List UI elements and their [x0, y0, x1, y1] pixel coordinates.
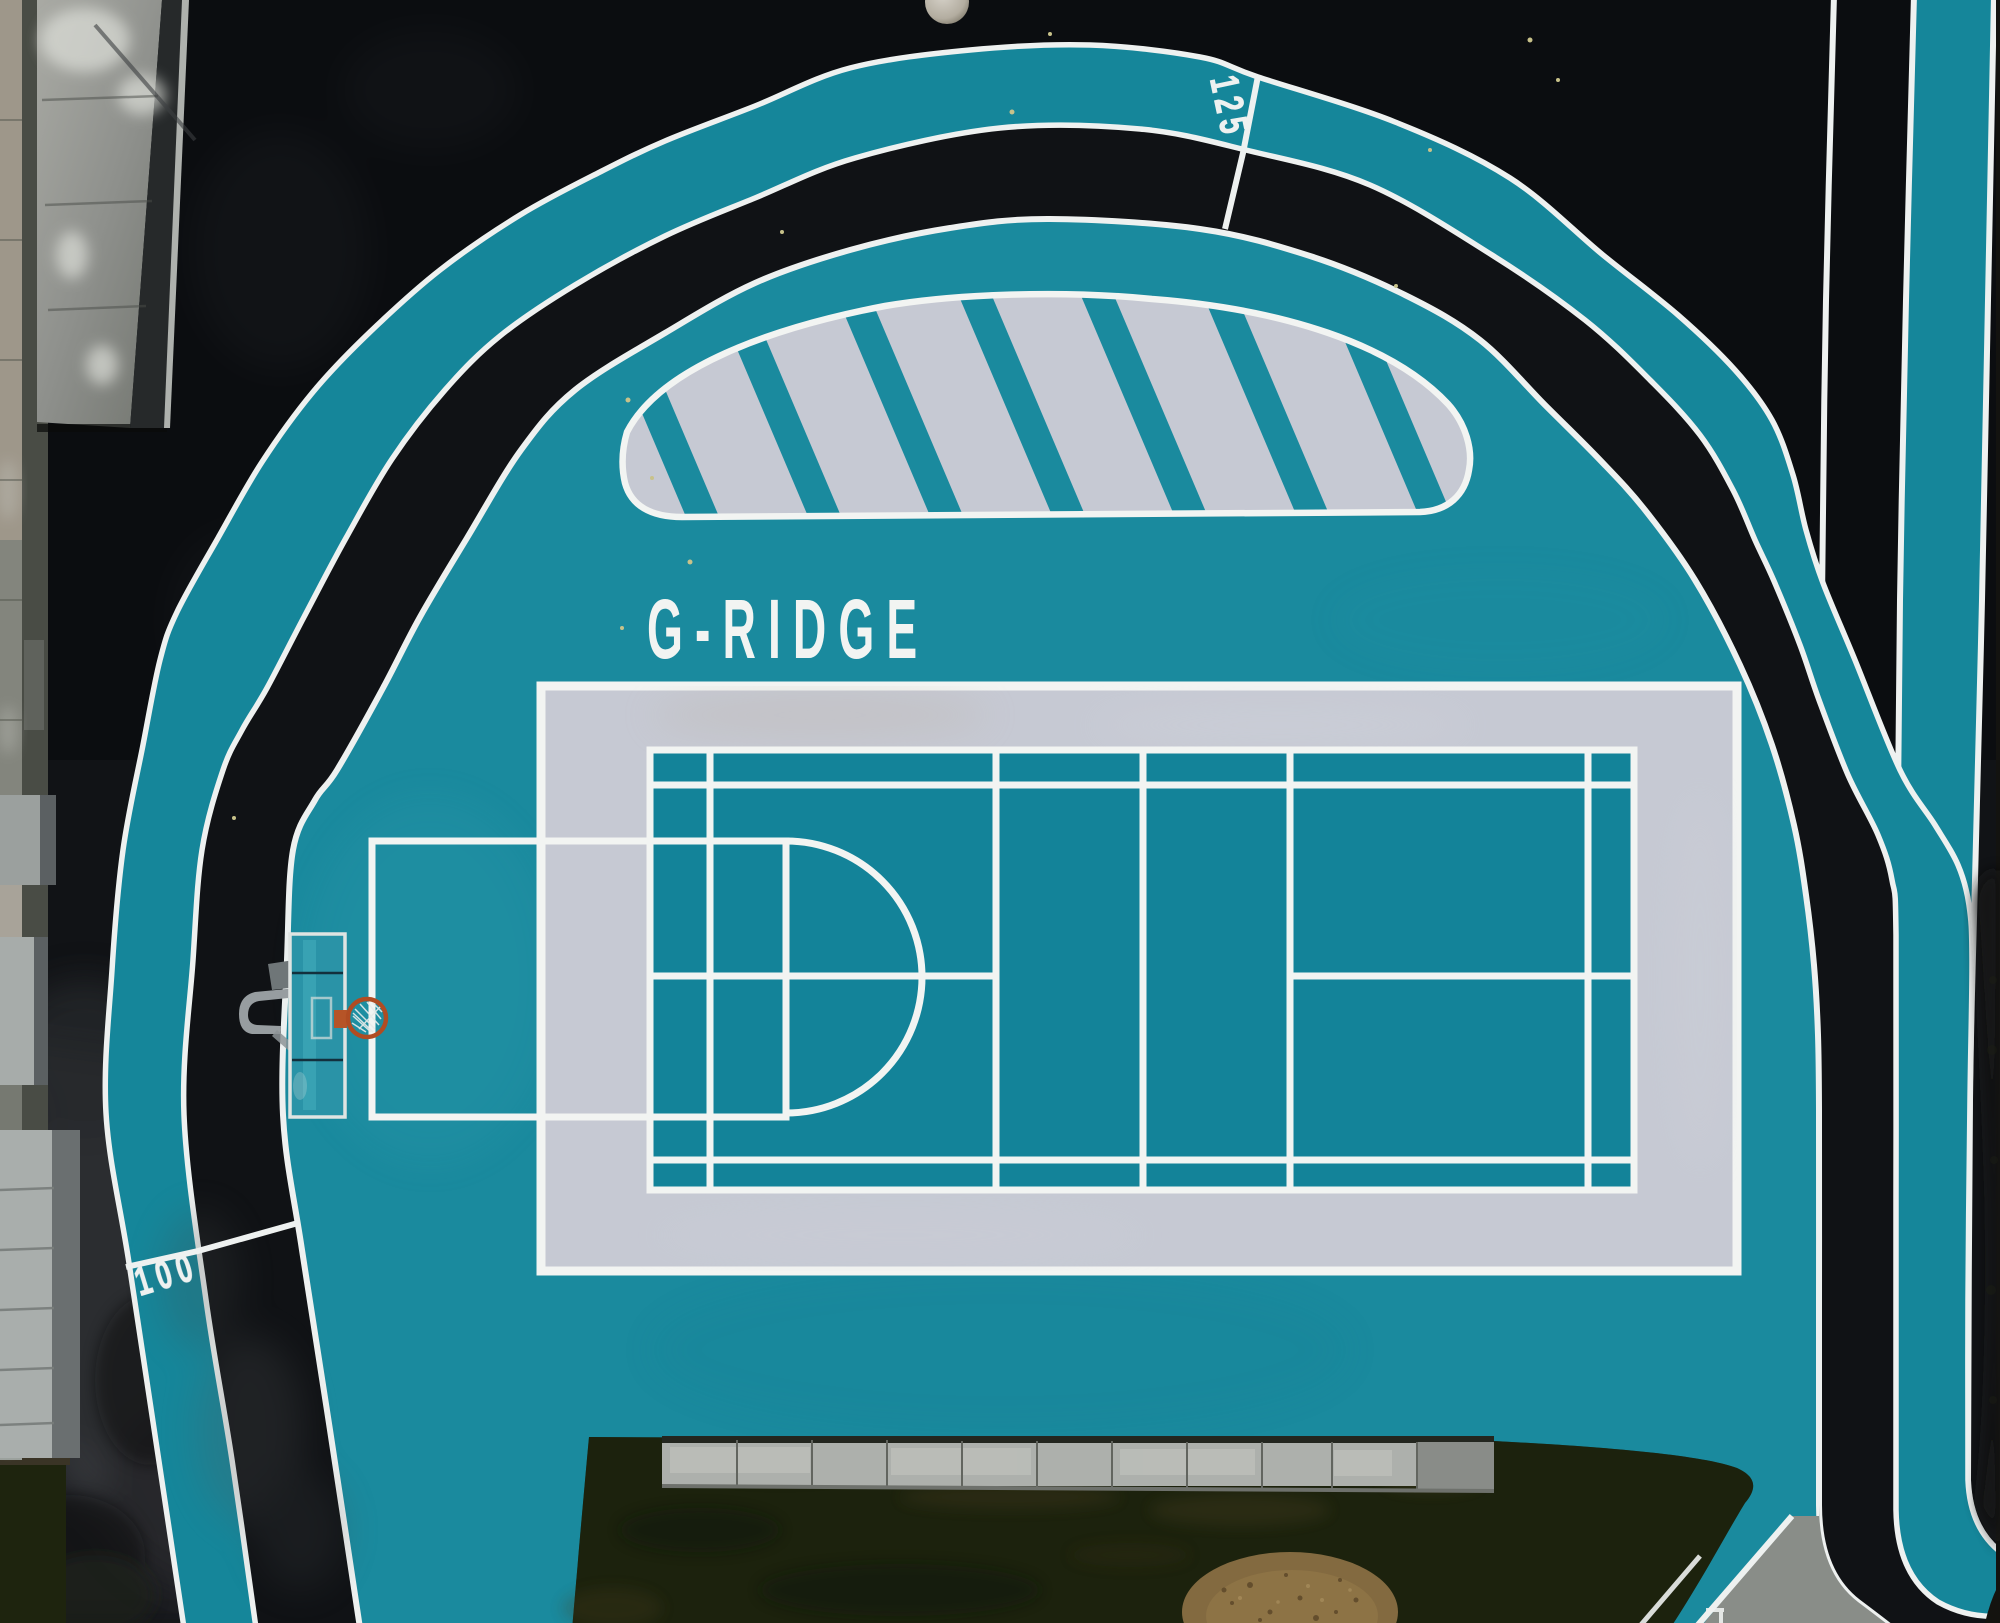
- svg-text:G-RIDGE: G-RIDGE: [647, 584, 929, 677]
